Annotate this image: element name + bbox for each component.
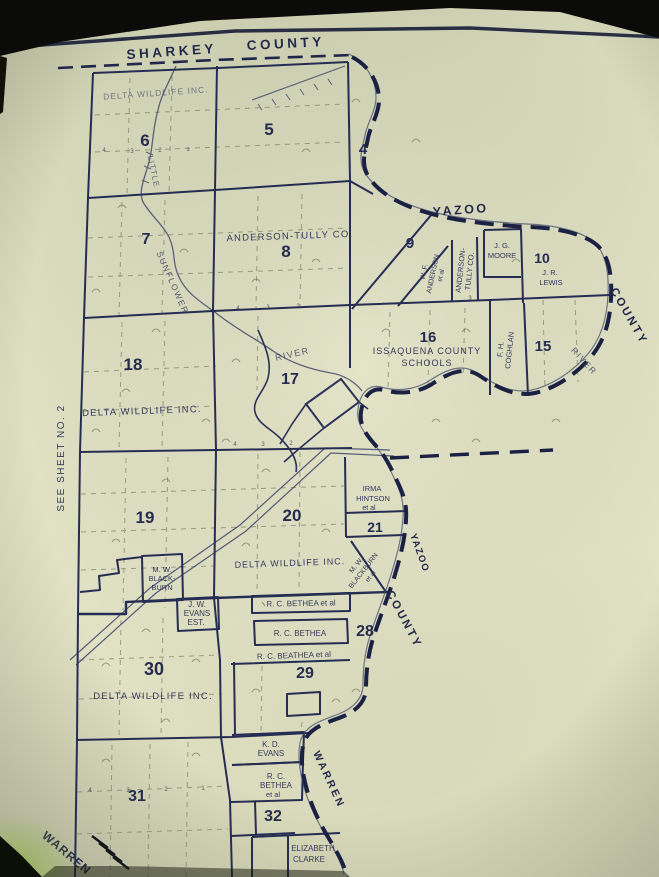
section-number-7: 7: [142, 231, 151, 248]
svg-text:BURN: BURN: [151, 583, 172, 592]
section-number-15: 15: [535, 338, 552, 355]
owner-rc-bethea-2: R. C. BETHEA: [274, 629, 327, 638]
svg-text:J. G.: J. G.: [494, 241, 510, 250]
svg-text:HINTSON: HINTSON: [356, 494, 390, 503]
section-number-21: 21: [367, 519, 383, 535]
section-number-4: 4: [359, 141, 368, 158]
section-number-17: 17: [281, 371, 299, 388]
svg-text:EST.: EST.: [188, 618, 205, 627]
section-number-6: 6: [140, 131, 149, 150]
svg-text:EVANS: EVANS: [184, 609, 211, 618]
svg-text:et al: et al: [362, 505, 376, 512]
section-number-28: 28: [356, 623, 374, 640]
svg-text:M. W.: M. W.: [152, 565, 171, 574]
section-number-5: 5: [264, 120, 273, 139]
section-number-9: 9: [406, 235, 414, 252]
svg-text:SCHOOLS: SCHOOLS: [401, 358, 452, 368]
section-number-18: 18: [124, 355, 143, 374]
svg-text:J. W.: J. W.: [188, 600, 206, 609]
section-number-19: 19: [136, 508, 155, 527]
svg-text:J. R.: J. R.: [542, 268, 557, 277]
section-number-16: 16: [420, 329, 437, 346]
section-number-20: 20: [283, 506, 302, 525]
svg-text:IRMA: IRMA: [363, 484, 382, 493]
note-see-sheet: SEE SHEET NO. 2: [56, 404, 67, 511]
section-number-8: 8: [281, 242, 290, 261]
plat-map-canvas: SHARKEY COUNTY DELTA WILDLIFE INC. 6 5 4…: [0, 0, 659, 877]
svg-text:ISSAQUENA COUNTY: ISSAQUENA COUNTY: [373, 346, 482, 356]
photo-green-corner-glow: [0, 640, 300, 877]
svg-text:LEWIS: LEWIS: [539, 278, 562, 287]
plat-map-photo: SHARKEY COUNTY DELTA WILDLIFE INC. 6 5 4…: [0, 0, 659, 877]
svg-text:BLACK-: BLACK-: [148, 574, 176, 583]
section-number-10: 10: [534, 250, 550, 266]
owner-rc-bethea-1: R. C. BETHEA et al: [266, 598, 336, 608]
svg-text:MOORE: MOORE: [488, 251, 516, 260]
